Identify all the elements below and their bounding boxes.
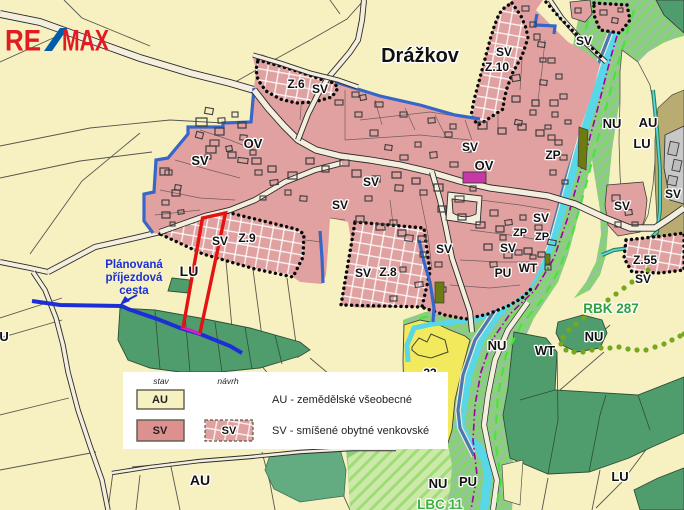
svg-text:PU: PU [459,474,477,489]
svg-text:WT: WT [535,343,555,358]
svg-text:SV: SV [222,425,237,437]
svg-text:NU: NU [585,329,604,344]
svg-text:Z.6: Z.6 [287,77,305,91]
svg-text:SV: SV [614,199,630,213]
svg-text:NU: NU [603,116,622,131]
svg-text:SV: SV [191,153,209,168]
svg-text:LU: LU [611,469,628,484]
svg-text:LU: LU [180,263,199,279]
svg-text:SV: SV [436,242,452,256]
svg-text:SV: SV [500,241,516,255]
svg-text:příjezdová: příjezdová [106,272,163,284]
svg-text:PU: PU [495,266,512,280]
svg-text:Z.8: Z.8 [379,265,397,279]
svg-text:ZP: ZP [535,231,549,243]
svg-text:SV: SV [635,272,651,286]
svg-text:SV: SV [496,45,512,59]
svg-text:SV: SV [363,175,379,189]
svg-text:AU - zemědělské všeobecné: AU - zemědělské všeobecné [272,394,412,406]
svg-text:SV: SV [355,266,371,280]
svg-text:ZP: ZP [513,227,527,239]
svg-text:SV: SV [462,140,478,154]
svg-text:SV: SV [212,234,228,248]
svg-text:Z.10: Z.10 [485,60,509,74]
svg-text:Plánovaná: Plánovaná [105,259,163,271]
svg-text:WT: WT [519,261,538,275]
svg-text:RE: RE [5,25,41,58]
svg-text:LU: LU [633,136,650,151]
svg-text:SV: SV [153,425,168,437]
svg-text:AU: AU [639,115,658,130]
svg-text:MAX: MAX [62,25,109,58]
svg-text:SV: SV [576,34,592,48]
svg-text:AU: AU [190,472,210,488]
svg-text:SV: SV [533,211,549,225]
svg-text:SV: SV [312,82,328,96]
svg-text:Drážkov: Drážkov [381,45,460,67]
svg-text:OV: OV [244,136,263,151]
svg-text:SV: SV [665,187,681,201]
svg-text:ZP: ZP [545,148,560,162]
svg-text:U: U [0,329,9,344]
svg-text:OV: OV [475,158,494,173]
svg-text:AU: AU [152,394,168,406]
svg-text:Z.9: Z.9 [238,231,256,245]
svg-text:NU: NU [429,476,448,491]
svg-text:cesta: cesta [119,285,149,297]
svg-text:SV - smíšené obytné venkovské: SV - smíšené obytné venkovské [272,425,429,437]
svg-text:LBC 11: LBC 11 [417,497,463,510]
svg-text:Z.55: Z.55 [633,253,657,267]
svg-text:stav: stav [153,376,169,386]
svg-text:RBK 287: RBK 287 [583,301,639,316]
svg-text:návrh: návrh [217,376,239,386]
svg-text:SV: SV [332,198,348,212]
svg-text:NU: NU [488,338,507,353]
